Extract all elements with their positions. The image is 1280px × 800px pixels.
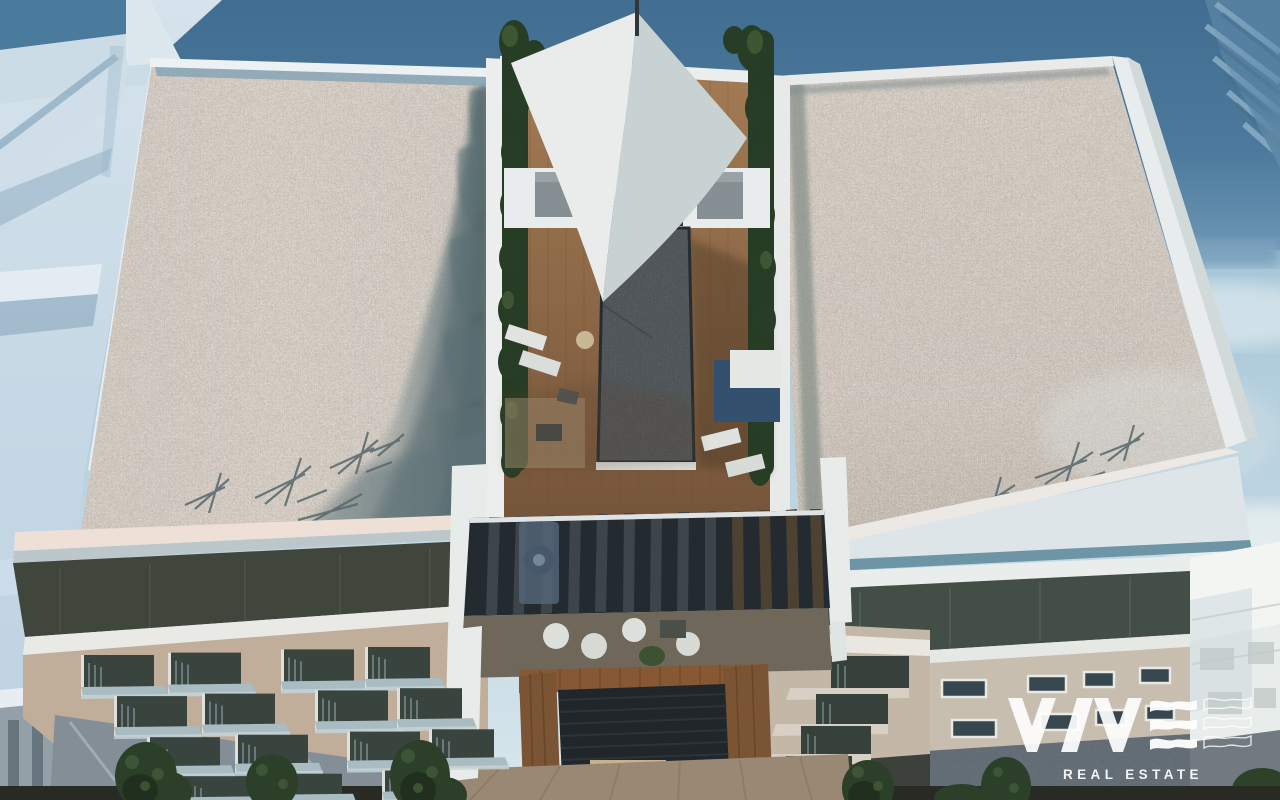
svg-text:REAL ESTATE: REAL ESTATE	[1063, 767, 1203, 782]
